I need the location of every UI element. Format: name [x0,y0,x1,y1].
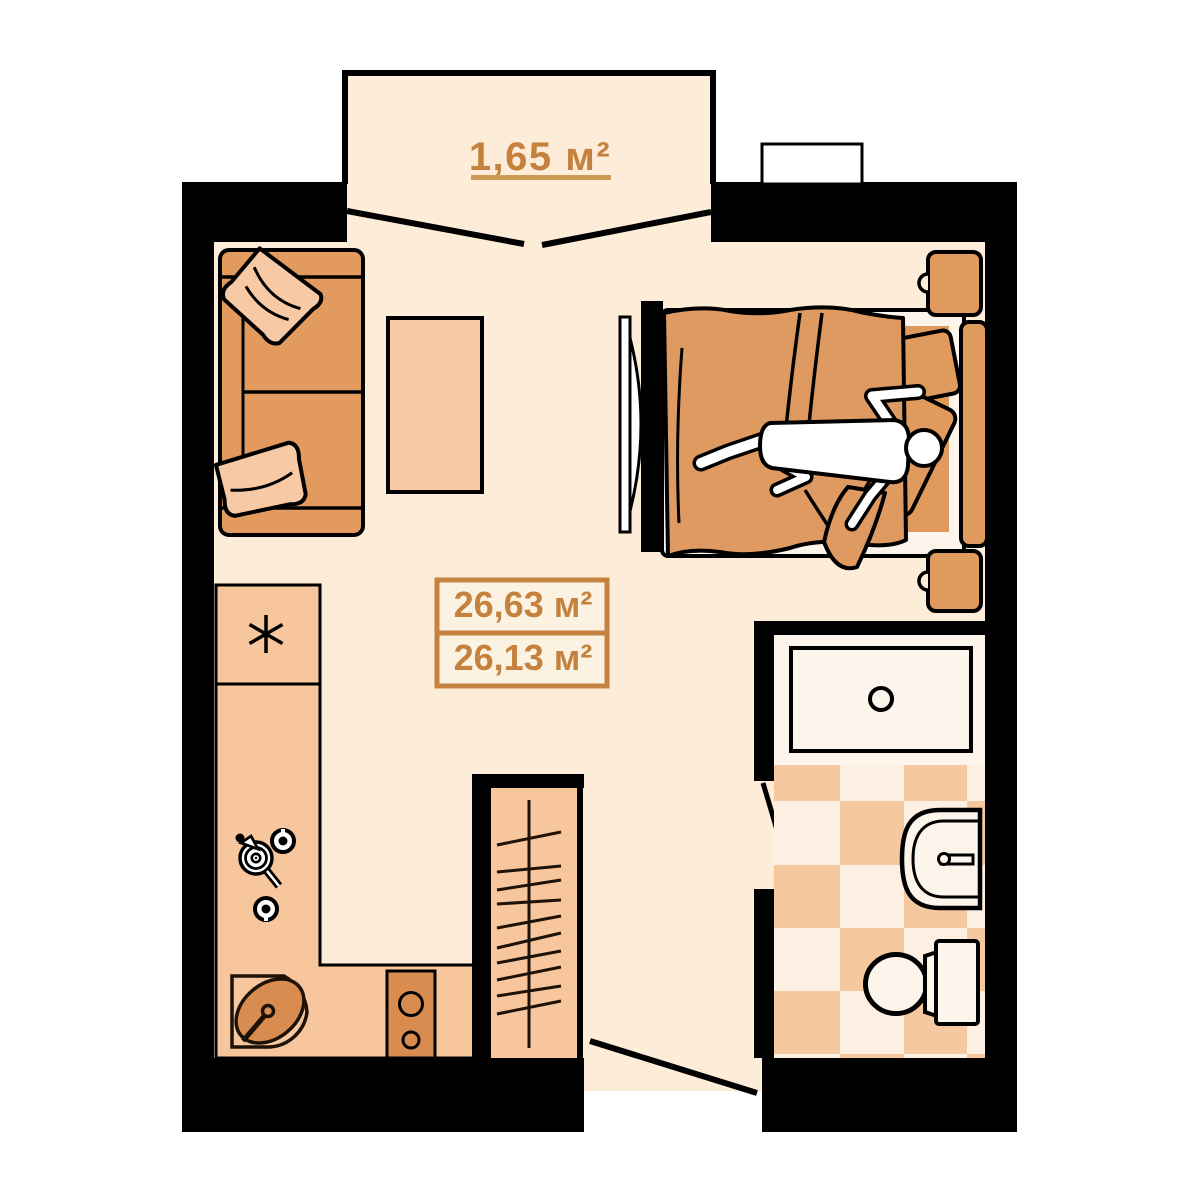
svg-text:26,63 м²: 26,63 м² [454,584,593,625]
svg-text:26,13 м²: 26,13 м² [454,637,593,678]
svg-text:1,65 м²: 1,65 м² [469,135,611,179]
